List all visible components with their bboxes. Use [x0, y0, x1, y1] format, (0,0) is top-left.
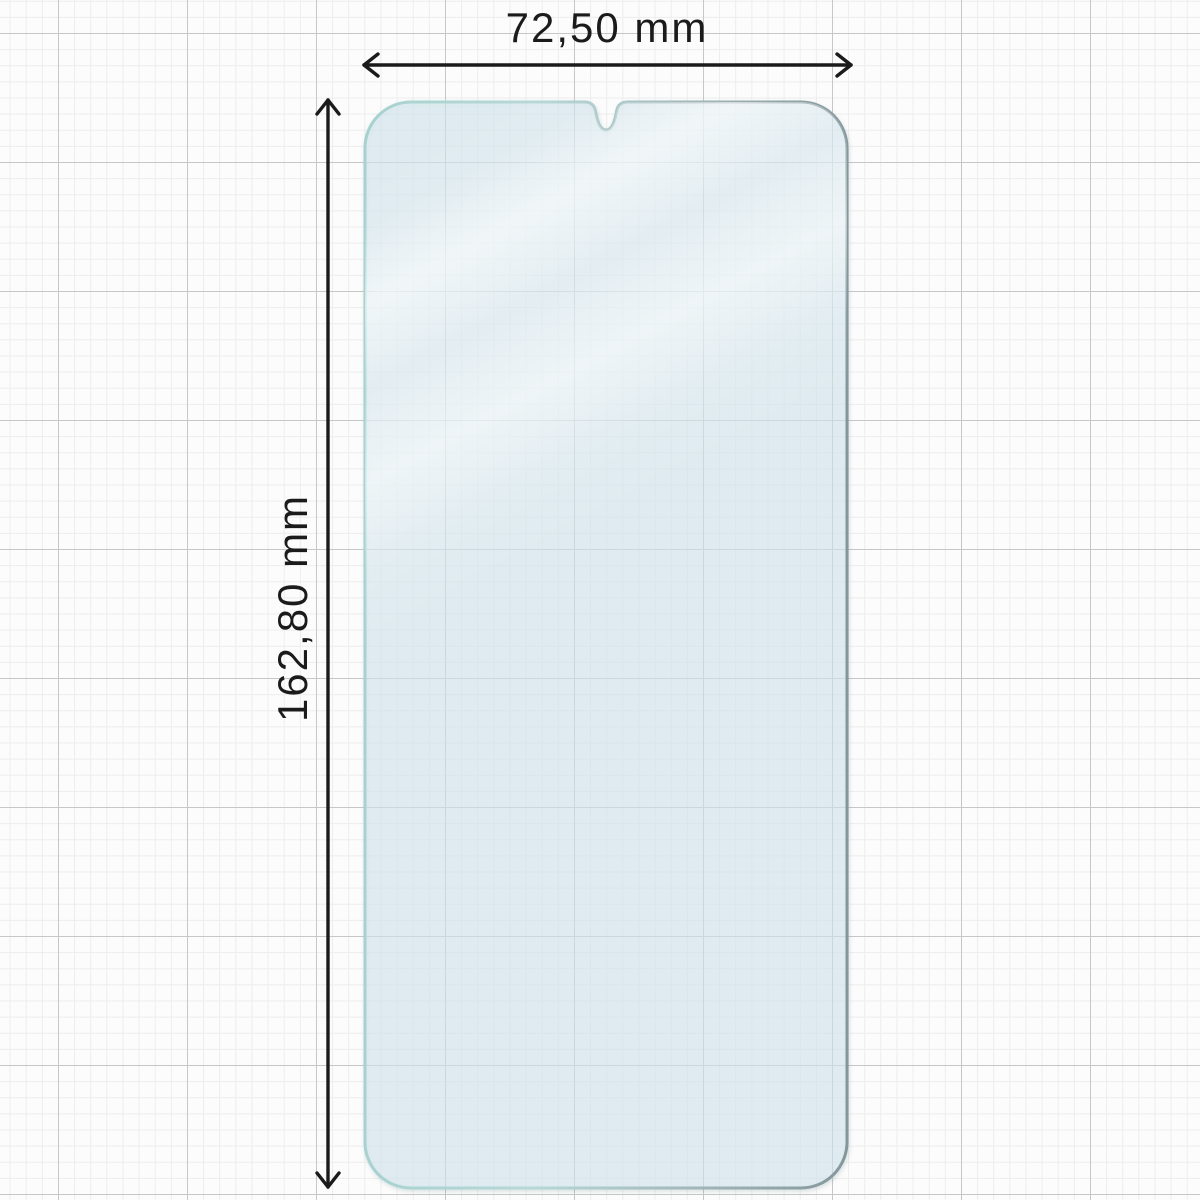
width-dimension-label: 72,50 mm [506, 4, 709, 52]
height-dimension-arrow [317, 100, 339, 1187]
glass-reflection [365, 102, 847, 1188]
screen-protector-illustration [0, 0, 1200, 1200]
graph-paper-background: 72,50 mm 162,80 mm [0, 0, 1200, 1200]
width-dimension-arrow [364, 54, 851, 76]
height-dimension-label: 162,80 mm [269, 494, 317, 722]
